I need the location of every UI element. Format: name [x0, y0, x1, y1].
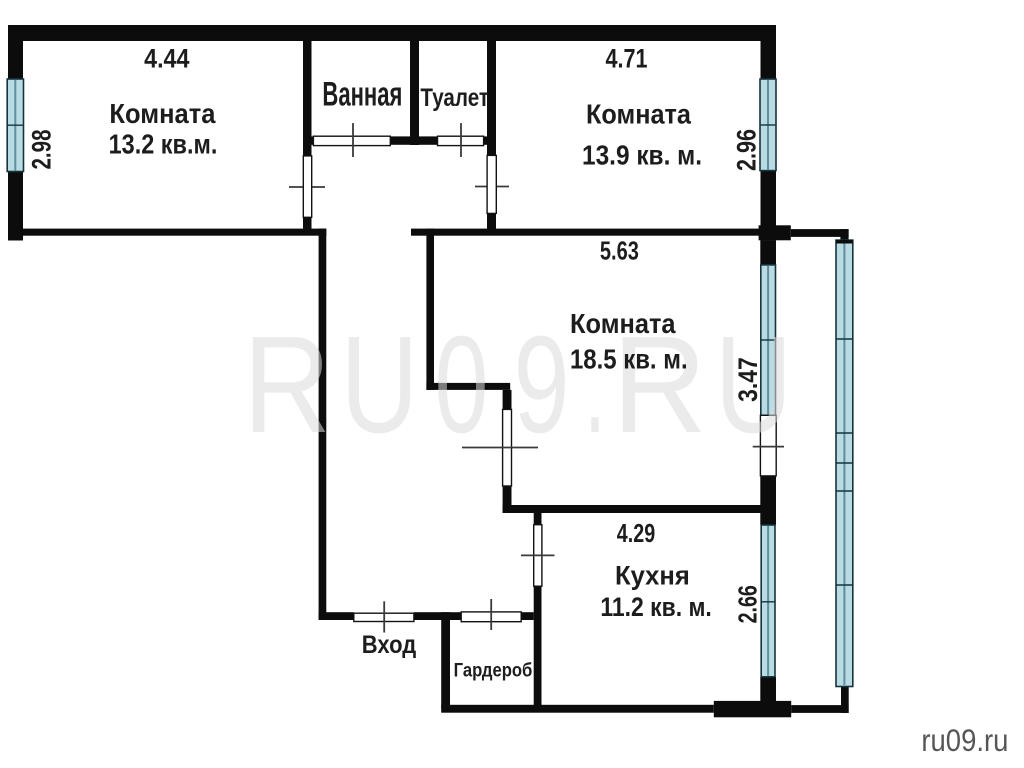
svg-text:Комната: Комната [109, 98, 215, 129]
svg-text:Ванная: Ванная [322, 75, 402, 113]
svg-text:Вход: Вход [362, 631, 417, 659]
svg-text:0: 0 [435, 308, 489, 462]
svg-text:Гардероб: Гардероб [454, 661, 533, 682]
svg-text:Комната: Комната [570, 308, 676, 339]
svg-text:4.29: 4.29 [617, 518, 655, 548]
svg-text:13.2 кв.м.: 13.2 кв.м. [109, 129, 218, 160]
svg-text:ru09.ru: ru09.ru [921, 722, 1008, 758]
svg-text:2.96: 2.96 [732, 129, 762, 171]
svg-text:3.47: 3.47 [733, 357, 763, 402]
svg-text:4.71: 4.71 [606, 44, 648, 74]
svg-text:13.9 кв. м.: 13.9 кв. м. [582, 140, 702, 171]
svg-text:2.98: 2.98 [27, 130, 57, 170]
svg-text:11.2 кв. м.: 11.2 кв. м. [600, 592, 711, 622]
svg-text:U: U [341, 308, 419, 462]
svg-text:18.5 кв. м.: 18.5 кв. м. [570, 344, 688, 375]
svg-text:Кухня: Кухня [615, 561, 690, 591]
svg-text:5.63: 5.63 [600, 236, 639, 266]
svg-text:4.44: 4.44 [144, 43, 189, 73]
svg-text:R: R [243, 308, 331, 462]
svg-text:Комната: Комната [586, 99, 691, 130]
svg-text:Туалет: Туалет [420, 84, 489, 112]
svg-text:9: 9 [514, 308, 570, 462]
svg-text:2.66: 2.66 [733, 585, 763, 623]
